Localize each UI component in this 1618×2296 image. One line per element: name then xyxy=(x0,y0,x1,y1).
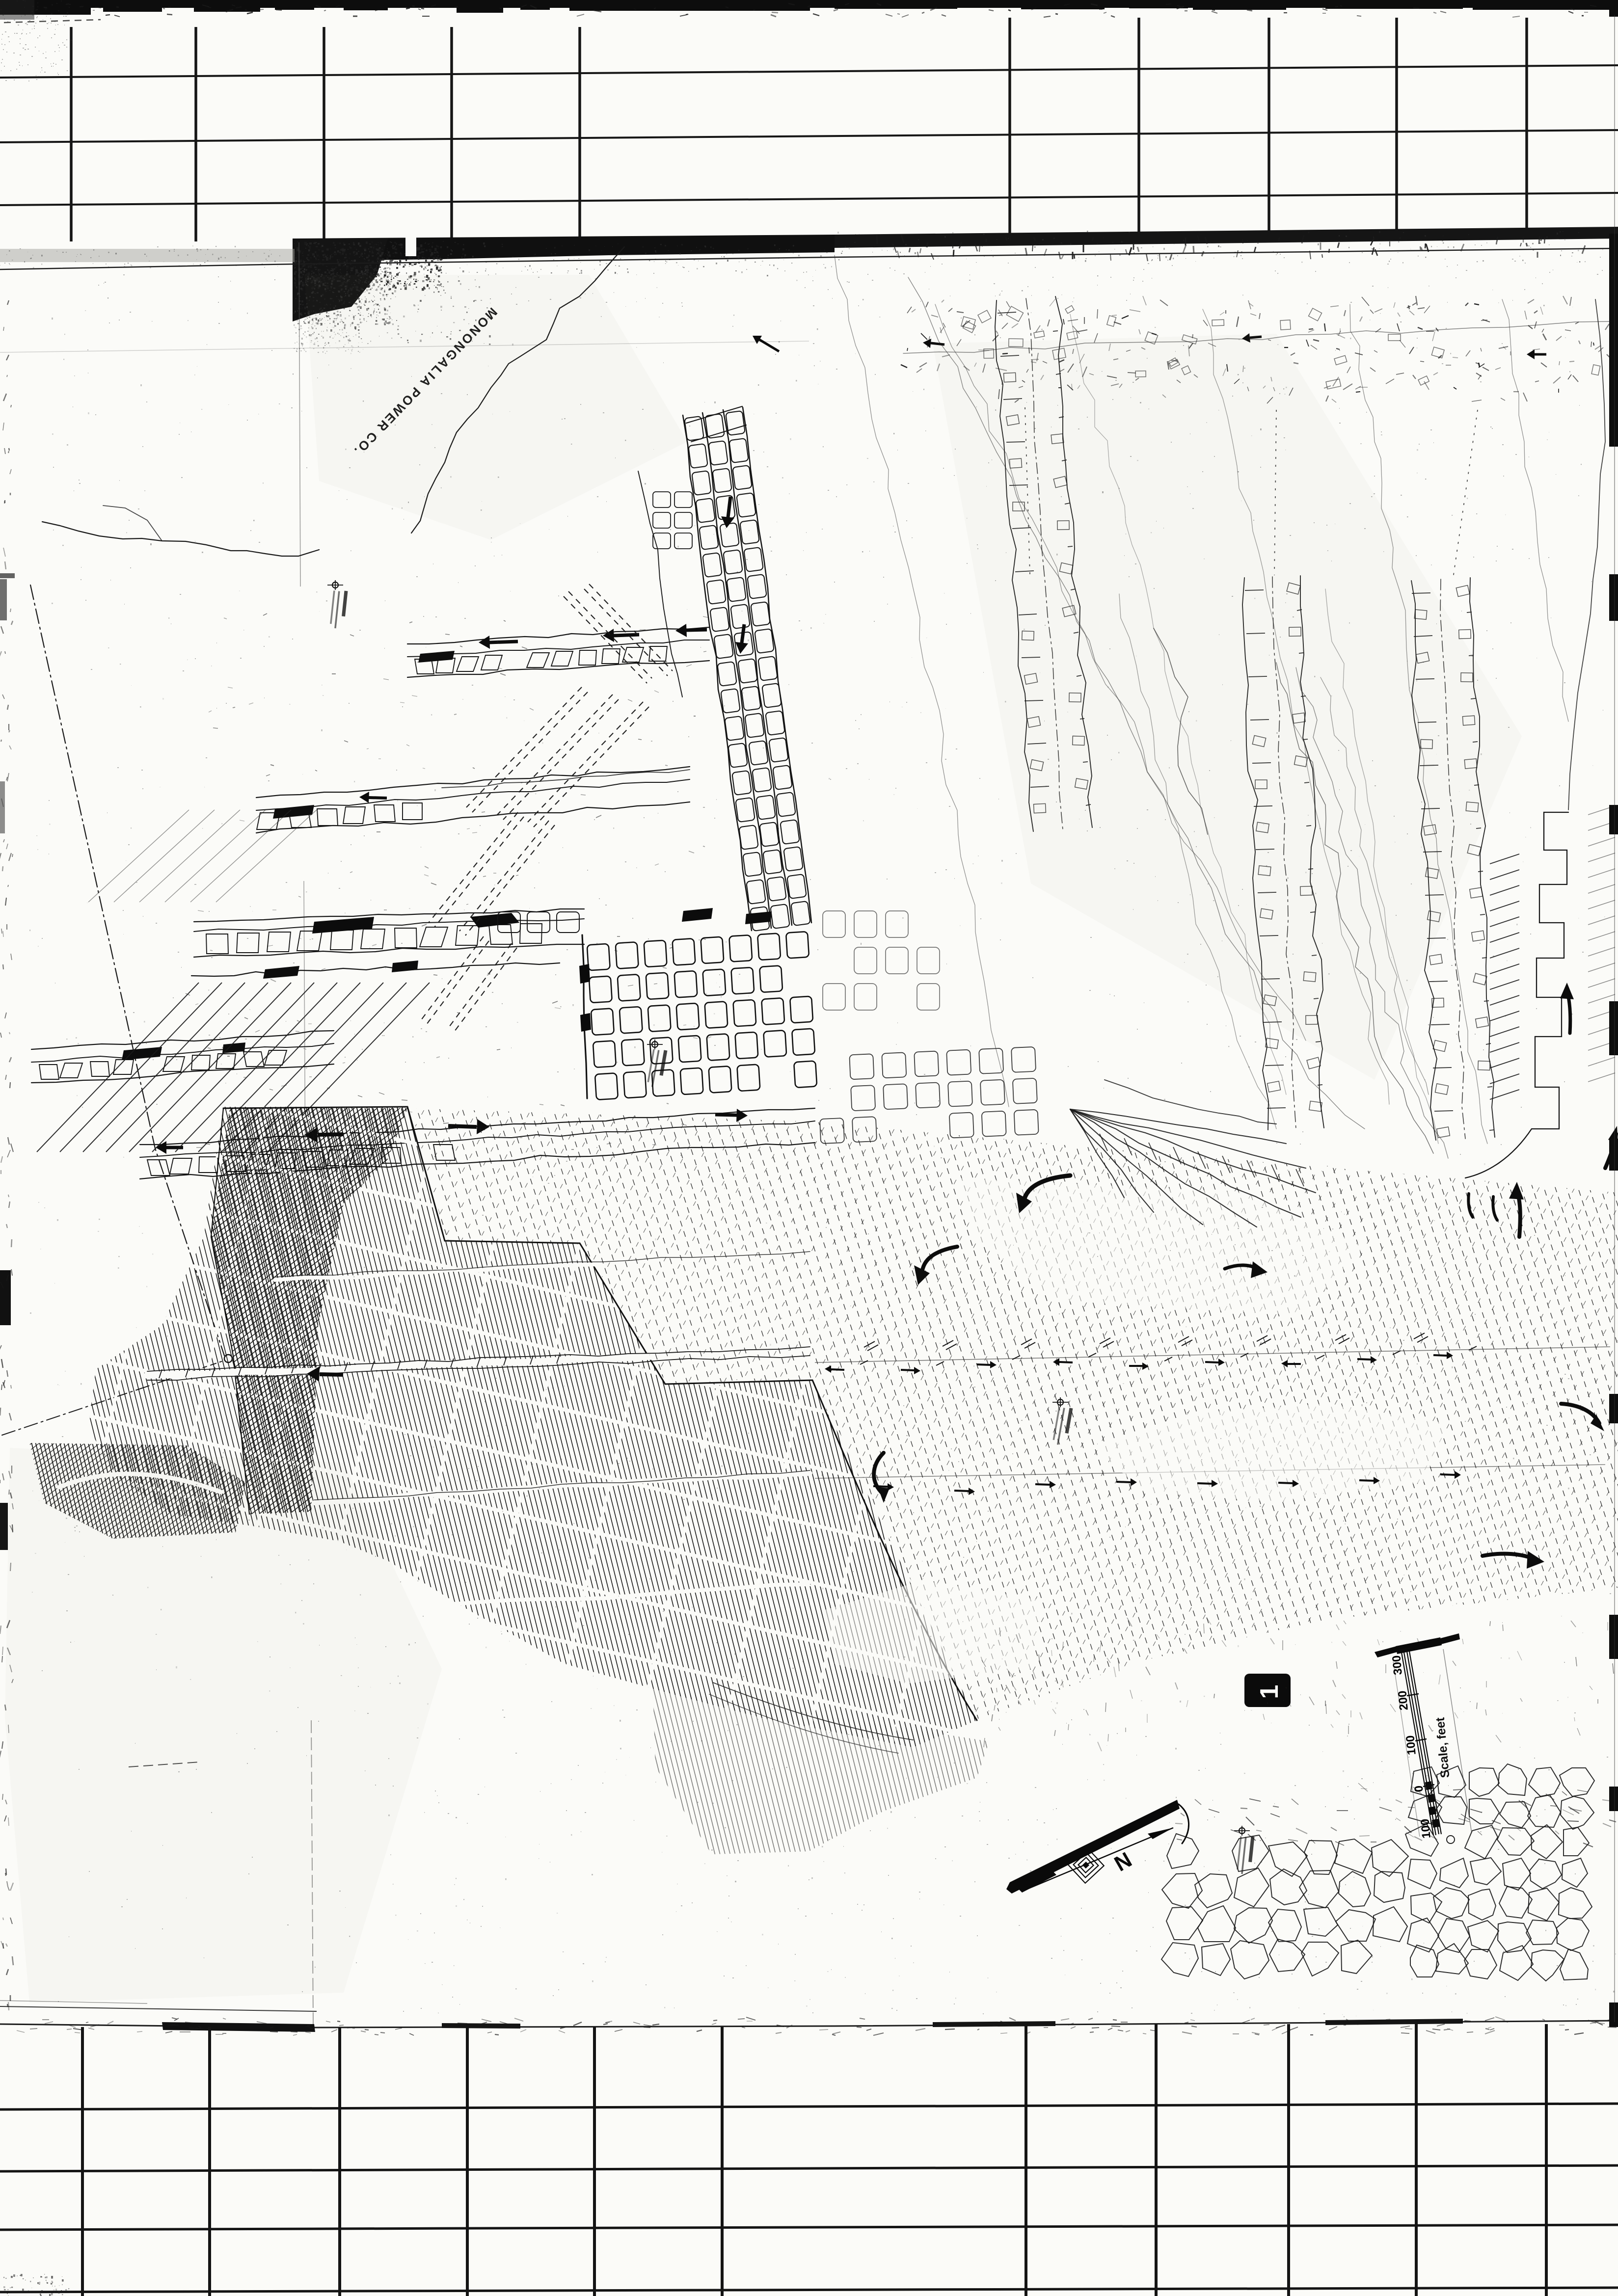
svg-text:0: 0 xyxy=(1412,1785,1426,1793)
svg-text:200: 200 xyxy=(1396,1690,1410,1711)
svg-text:100: 100 xyxy=(1418,1818,1433,1839)
svg-text:100: 100 xyxy=(1403,1735,1418,1756)
svg-text:300: 300 xyxy=(1390,1655,1404,1676)
svg-text:1: 1 xyxy=(1255,1685,1284,1699)
